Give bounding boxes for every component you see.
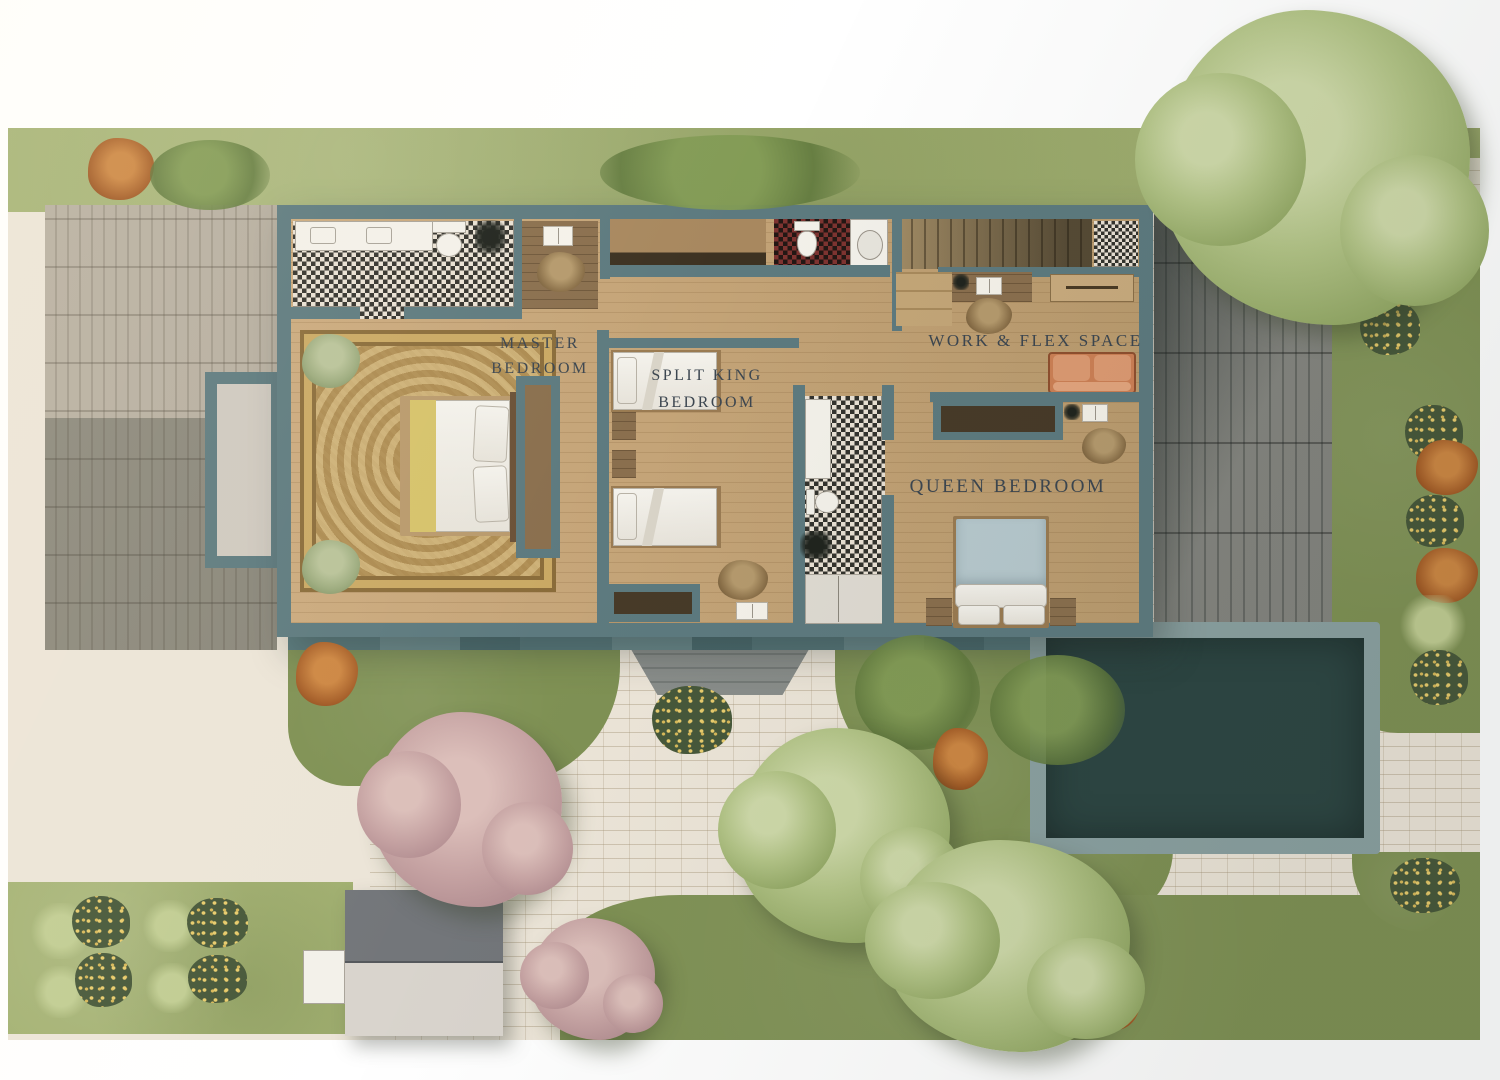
shrub-top-left xyxy=(150,140,270,210)
label-splitking-line1: SPLIT KING xyxy=(618,362,796,389)
shed-roof xyxy=(345,890,503,1036)
sk-dresser xyxy=(606,584,700,622)
queen-bed-duvet xyxy=(956,519,1046,587)
shower-door-line xyxy=(838,576,839,622)
toilet-powder-bowl xyxy=(797,231,817,257)
queen-pillow-left xyxy=(958,605,1000,625)
flower-bush-1 xyxy=(72,896,130,948)
sk-nightstand-1 xyxy=(612,412,636,440)
tree-pink-small xyxy=(530,918,655,1040)
shed-ridge xyxy=(345,961,503,963)
toilet-master-bowl xyxy=(436,233,462,257)
wall-splitking-top xyxy=(609,338,799,348)
sink-left xyxy=(310,227,336,244)
plant-middle-bath xyxy=(800,531,832,559)
site-plan: MASTER BEDROOM SPLIT KING BEDROOM WORK &… xyxy=(0,0,1500,1080)
master-pillow-1 xyxy=(473,405,510,463)
flower-bush-4 xyxy=(188,955,247,1003)
queen-nightstand-left xyxy=(926,598,952,626)
sofa-cushion-right xyxy=(1094,355,1131,381)
middle-bath-vanity xyxy=(805,399,831,479)
master-bath-door xyxy=(360,307,404,319)
plant-work-desk xyxy=(953,274,969,290)
book-work-desk xyxy=(976,277,1002,295)
label-work-flex: WORK & FLEX SPACE xyxy=(928,331,1143,351)
toilet-master-tank xyxy=(432,221,466,233)
label-splitking-line2: BEDROOM xyxy=(618,389,796,416)
wall-under-master-bath xyxy=(291,307,521,319)
wall-bath-queen-upper xyxy=(882,385,894,440)
sofa-seatback xyxy=(1053,382,1131,391)
master-bed-throw xyxy=(410,400,436,532)
label-master-line1: MASTER xyxy=(455,331,625,356)
label-splitking-bedroom: SPLIT KING BEDROOM xyxy=(618,362,796,416)
wall-closet-bottom xyxy=(600,265,776,277)
wall-powder-bottom xyxy=(774,265,890,277)
flower-bush-2 xyxy=(187,898,248,948)
work-console-handle xyxy=(1066,286,1118,289)
twin-pillow-bottom xyxy=(617,493,637,540)
sk-nightstand-2 xyxy=(612,450,636,478)
wall-bath-queen-lower xyxy=(882,495,894,625)
wall-nook xyxy=(514,219,522,319)
hall-closet xyxy=(610,219,766,267)
stair-landing-checker xyxy=(1094,221,1138,267)
equipment-unit xyxy=(303,950,345,1004)
garden-flower-bush-3 xyxy=(1410,650,1468,705)
queen-pillow-right xyxy=(1003,605,1045,625)
powder-sink xyxy=(857,230,883,260)
tree-bottom-right xyxy=(885,840,1130,1052)
sink-right xyxy=(366,227,392,244)
entry-porch xyxy=(205,372,283,568)
label-queen-bedroom: QUEEN BEDROOM xyxy=(908,476,1108,498)
toilet-powder-tank xyxy=(794,221,820,231)
flower-bush-3 xyxy=(75,953,132,1007)
toilet-middle-tank xyxy=(806,489,815,515)
sofa-cushion-left xyxy=(1053,355,1090,381)
toilet-middle-bowl xyxy=(815,491,839,513)
garden-flower-bush-2 xyxy=(1406,495,1464,547)
garden-fern xyxy=(1398,595,1468,655)
shrub-top-mid xyxy=(600,135,860,210)
master-wardrobe xyxy=(516,376,560,558)
plant-master-bath xyxy=(475,220,505,254)
bush-yellow-path xyxy=(652,686,732,754)
master-pillow-2 xyxy=(473,465,510,523)
label-workflex-line1: WORK & FLEX SPACE xyxy=(928,331,1143,351)
book-splitking xyxy=(736,602,768,620)
shrub-lawn-2 xyxy=(990,655,1125,765)
queen-desk xyxy=(933,398,1063,440)
wall-splitking-bath xyxy=(793,385,805,625)
queen-nightstand-right xyxy=(1050,598,1076,626)
label-master-line2: BEDROOM xyxy=(455,356,625,381)
book-queen-desk xyxy=(1082,404,1108,422)
plant-queen-desk xyxy=(1064,404,1080,420)
label-master-bedroom: MASTER BEDROOM xyxy=(455,331,625,381)
garden-flower-bush-4 xyxy=(1390,858,1460,913)
tree-pink-center xyxy=(372,712,562,907)
staircase xyxy=(900,219,1092,269)
book-nook xyxy=(543,226,573,246)
work-steps xyxy=(896,272,952,326)
shower xyxy=(805,574,885,624)
label-queen-line1: QUEEN BEDROOM xyxy=(908,476,1108,498)
